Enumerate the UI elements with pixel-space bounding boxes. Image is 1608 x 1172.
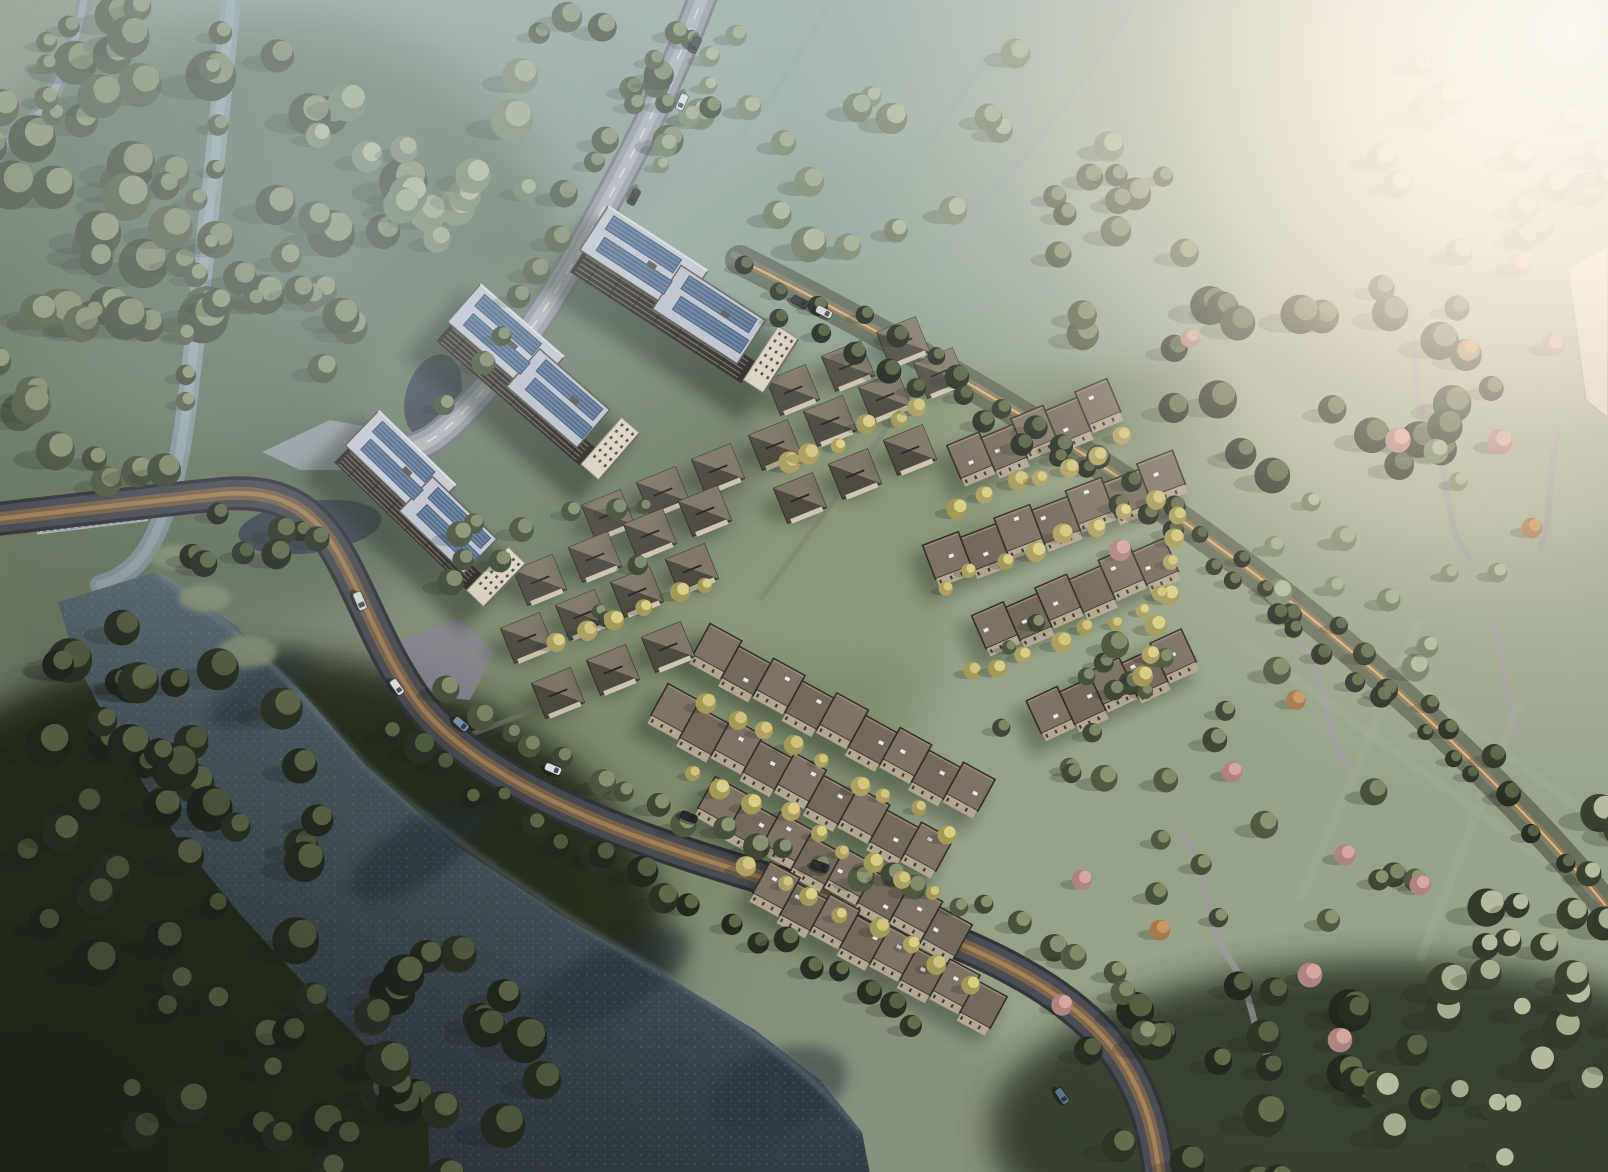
rendering-canvas (0, 0, 1608, 1172)
aerial-site-rendering (0, 0, 1608, 1172)
effects-layer (0, 0, 1608, 1172)
vignette (0, 0, 1608, 1172)
